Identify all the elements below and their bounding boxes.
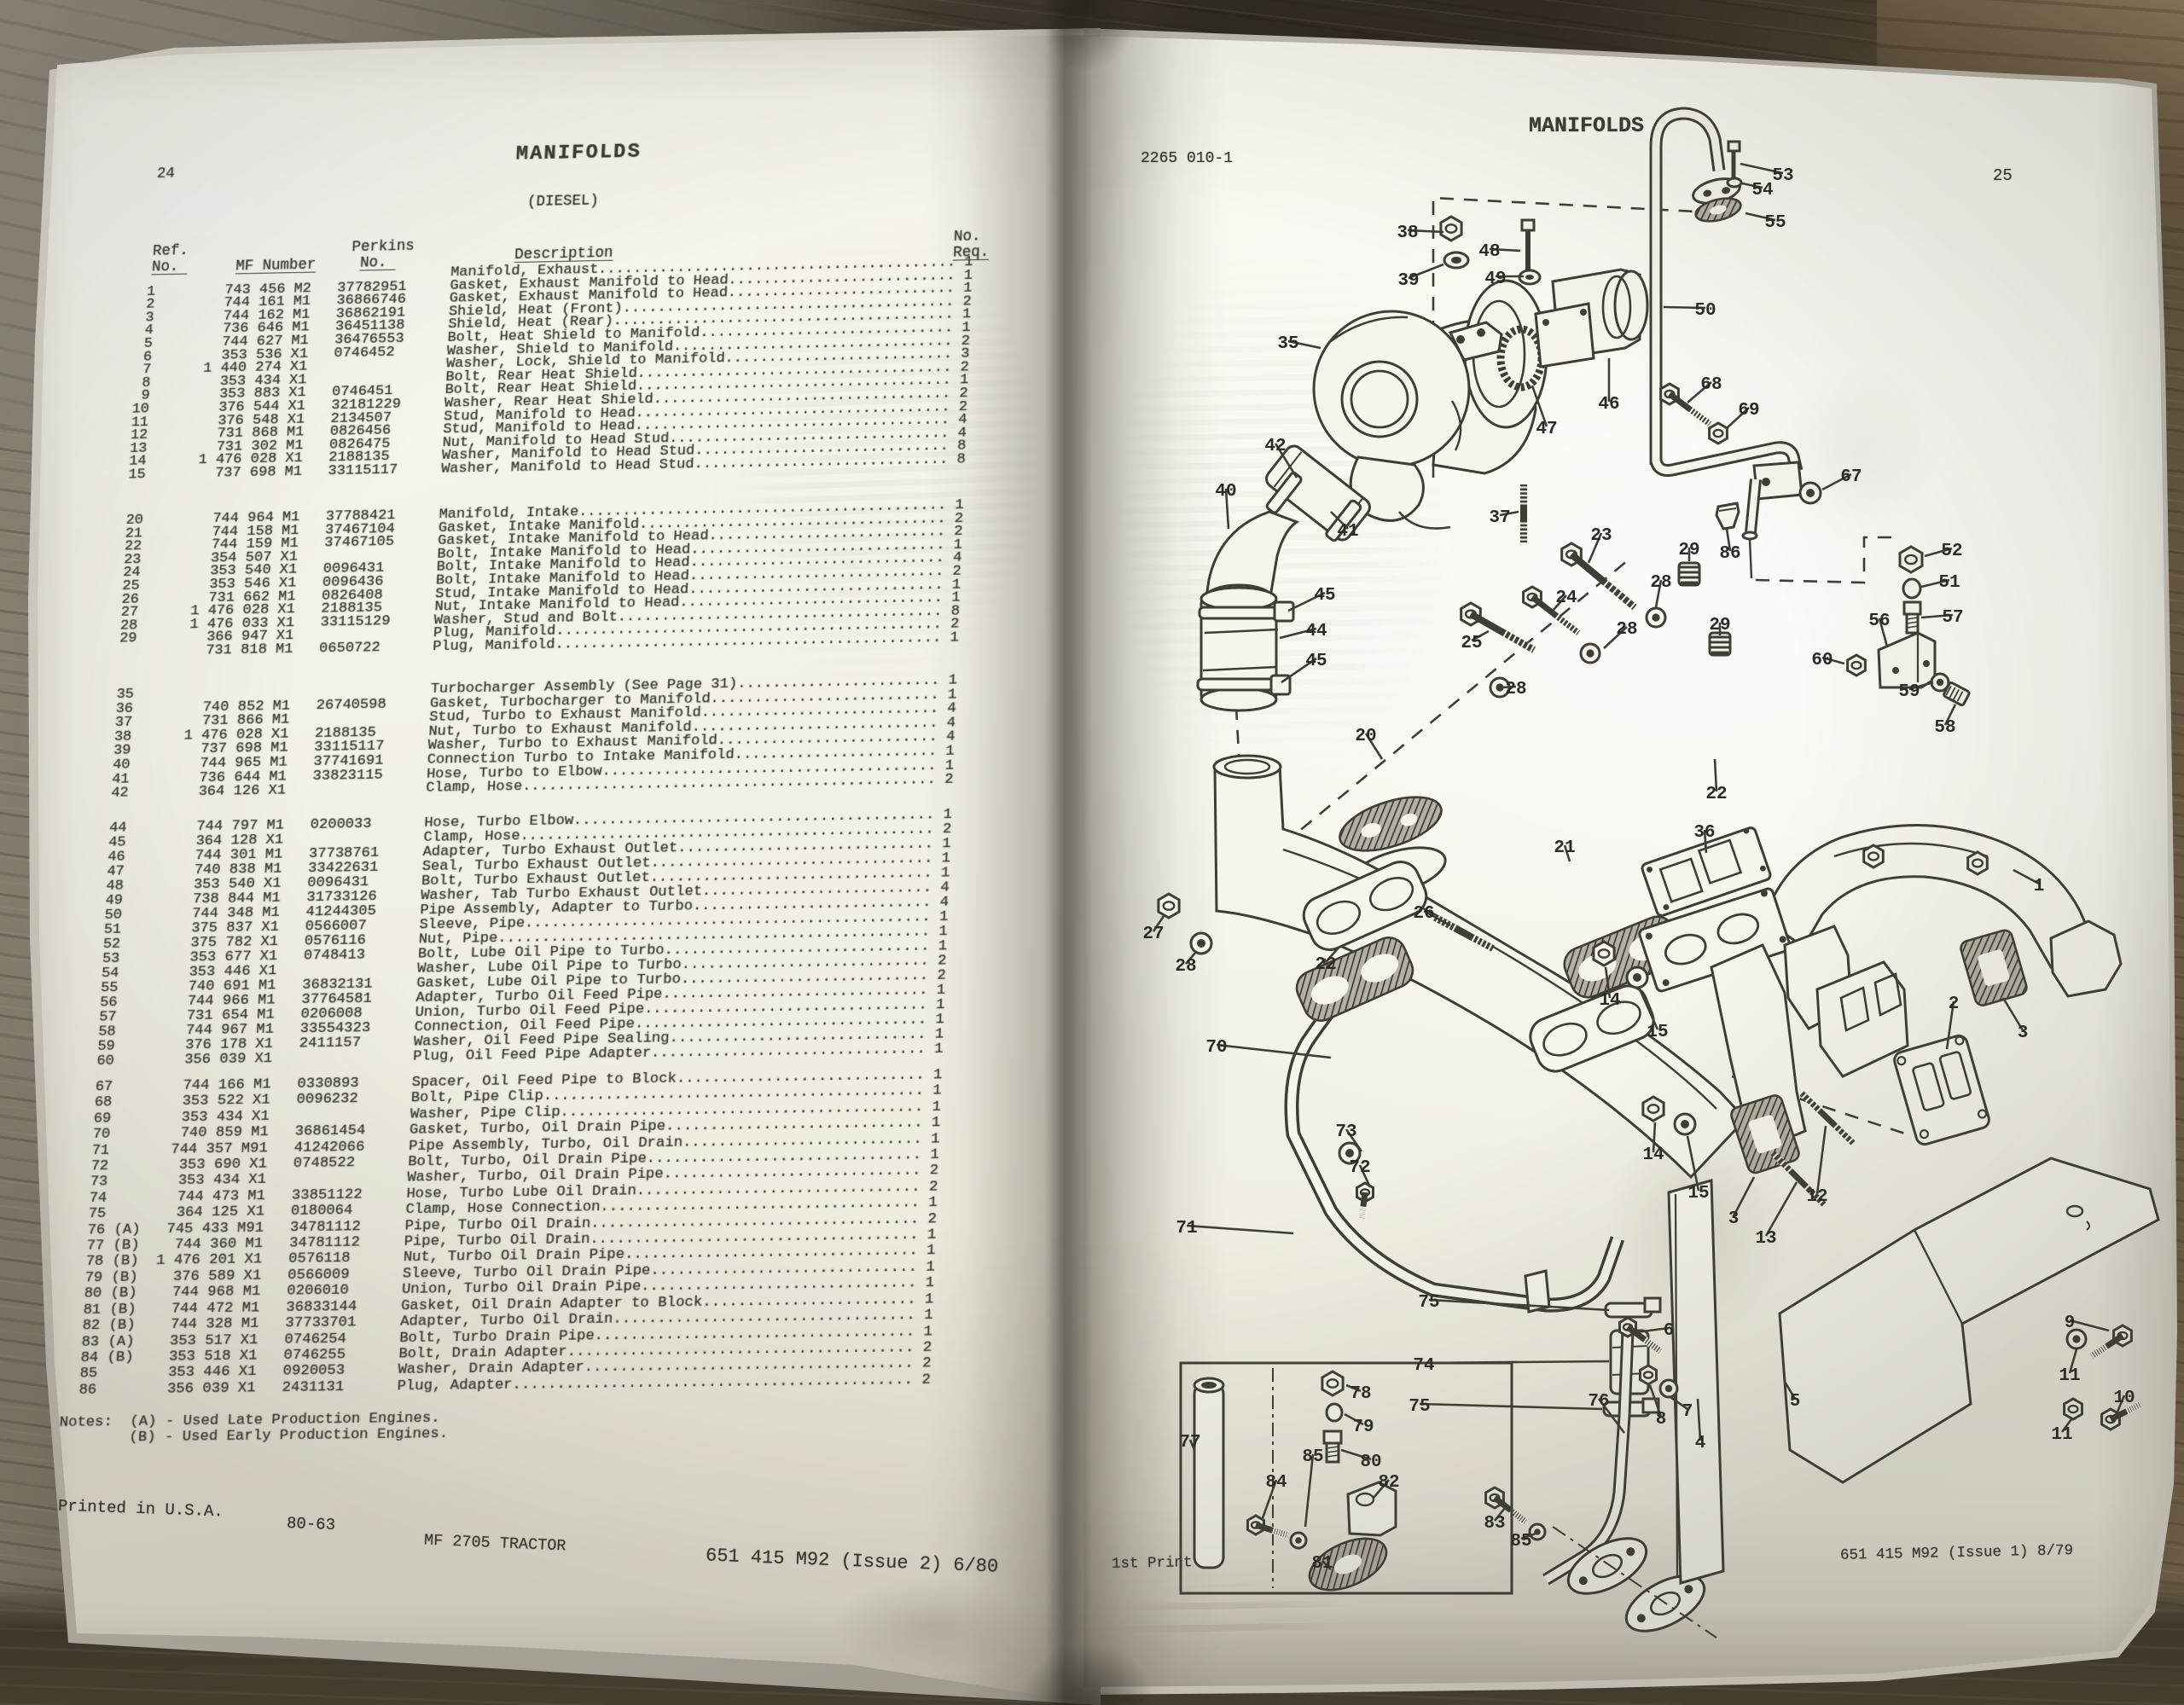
svg-text:46: 46: [1598, 395, 1619, 415]
svg-text:35: 35: [1277, 334, 1298, 354]
svg-text:21: 21: [1554, 838, 1575, 858]
svg-text:37: 37: [1489, 508, 1510, 528]
svg-text:75: 75: [1418, 1293, 1439, 1313]
svg-text:80: 80: [1360, 1453, 1381, 1472]
svg-text:57: 57: [1942, 608, 1963, 628]
svg-text:6: 6: [1664, 1321, 1675, 1341]
svg-text:73: 73: [1335, 1122, 1356, 1142]
svg-text:67: 67: [1840, 467, 1862, 487]
svg-text:10: 10: [2113, 1389, 2135, 1408]
svg-text:26: 26: [1413, 904, 1434, 924]
svg-text:15: 15: [1647, 1023, 1668, 1042]
svg-text:55: 55: [1764, 213, 1786, 233]
svg-text:83: 83: [1484, 1514, 1505, 1534]
svg-text:2: 2: [1949, 995, 1960, 1014]
svg-text:14: 14: [1599, 991, 1620, 1011]
svg-text:69: 69: [1738, 401, 1759, 420]
svg-text:42: 42: [1264, 437, 1286, 456]
svg-text:15: 15: [1687, 1184, 1709, 1203]
svg-text:4: 4: [1695, 1434, 1706, 1453]
svg-text:13: 13: [1755, 1229, 1776, 1249]
svg-text:12: 12: [1806, 1187, 1827, 1207]
svg-text:76: 76: [1588, 1392, 1609, 1412]
svg-text:40: 40: [1215, 482, 1236, 502]
svg-text:22: 22: [1315, 955, 1336, 975]
svg-text:7: 7: [1682, 1402, 1693, 1422]
svg-text:24: 24: [1555, 589, 1577, 608]
svg-text:47: 47: [1536, 420, 1557, 439]
svg-text:29: 29: [1678, 541, 1699, 560]
svg-text:3: 3: [1728, 1209, 1740, 1229]
svg-text:29: 29: [1709, 616, 1730, 635]
svg-text:59: 59: [1898, 682, 1920, 702]
svg-text:3: 3: [2018, 1024, 2029, 1043]
svg-text:41: 41: [1337, 522, 1358, 542]
svg-text:53: 53: [1772, 166, 1793, 186]
svg-text:28: 28: [1650, 573, 1671, 593]
svg-text:68: 68: [1700, 375, 1722, 395]
svg-text:39: 39: [1397, 271, 1419, 291]
svg-text:52: 52: [1941, 542, 1962, 561]
svg-text:85: 85: [1302, 1447, 1323, 1467]
svg-text:11: 11: [2059, 1366, 2080, 1386]
svg-text:22: 22: [1705, 785, 1727, 804]
svg-text:50: 50: [1694, 301, 1716, 321]
svg-text:74: 74: [1413, 1356, 1434, 1376]
svg-text:25: 25: [1461, 634, 1482, 653]
svg-text:48: 48: [1478, 242, 1500, 262]
svg-text:71: 71: [1176, 1219, 1197, 1238]
svg-text:82: 82: [1378, 1473, 1399, 1493]
svg-text:27: 27: [1142, 925, 1164, 944]
svg-text:28: 28: [1505, 680, 1526, 699]
svg-text:81: 81: [1311, 1554, 1333, 1574]
svg-text:51: 51: [1938, 573, 1960, 593]
svg-text:38: 38: [1397, 223, 1418, 243]
svg-text:36: 36: [1693, 823, 1715, 843]
svg-text:58: 58: [1934, 718, 1955, 738]
svg-text:45: 45: [1305, 652, 1327, 671]
svg-text:44: 44: [1305, 622, 1327, 641]
svg-text:28: 28: [1175, 957, 1196, 977]
svg-text:1: 1: [2034, 877, 2045, 896]
svg-text:78: 78: [1350, 1384, 1371, 1404]
svg-text:20: 20: [1355, 727, 1376, 746]
svg-text:86: 86: [1719, 544, 1740, 564]
svg-text:28: 28: [1616, 620, 1637, 640]
svg-text:70: 70: [1205, 1038, 1227, 1058]
svg-text:11: 11: [2051, 1425, 2072, 1445]
svg-text:79: 79: [1352, 1418, 1374, 1437]
svg-text:23: 23: [1590, 526, 1612, 546]
svg-text:49: 49: [1484, 270, 1506, 289]
svg-text:8: 8: [1656, 1410, 1667, 1430]
svg-text:72: 72: [1349, 1158, 1370, 1178]
svg-text:84: 84: [1265, 1473, 1287, 1493]
svg-text:5: 5: [1790, 1392, 1801, 1412]
svg-text:56: 56: [1868, 612, 1890, 631]
svg-text:75: 75: [1409, 1397, 1430, 1417]
svg-text:45: 45: [1314, 586, 1335, 606]
svg-text:9: 9: [2065, 1314, 2076, 1333]
svg-text:60: 60: [1811, 651, 1833, 670]
svg-text:85: 85: [1510, 1532, 1531, 1551]
svg-text:77: 77: [1179, 1433, 1200, 1453]
svg-text:14: 14: [1642, 1145, 1664, 1165]
svg-text:54: 54: [1751, 181, 1773, 200]
